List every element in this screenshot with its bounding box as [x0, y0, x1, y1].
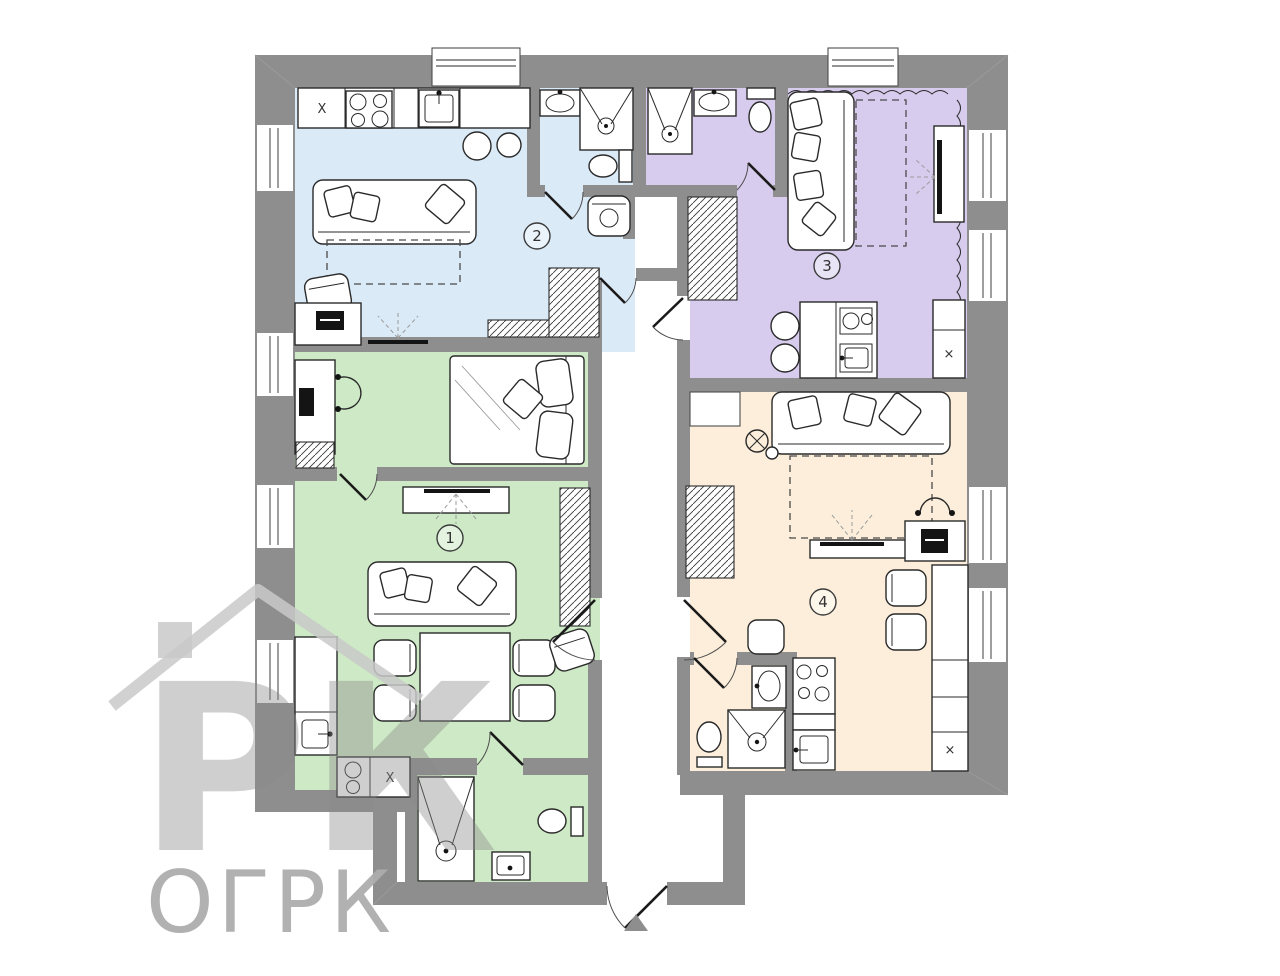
svg-text:3: 3 — [822, 257, 832, 275]
sofa-unit1 — [368, 562, 516, 626]
stove-unit2 — [346, 91, 392, 128]
door-unit3-hall — [653, 298, 683, 340]
window-left-2 — [257, 333, 293, 396]
floor-plan-drawing: X — [0, 0, 1280, 976]
svg-text:2: 2 — [532, 227, 542, 245]
closet-unit2 — [549, 268, 599, 337]
window-left-1 — [257, 125, 293, 191]
kitchen-x-mark-unit2: X — [318, 102, 327, 117]
kitchen-counter-unit2 — [298, 88, 530, 128]
cabinet-x-mark-unit4: × — [945, 743, 956, 758]
entrance-marker — [624, 914, 648, 931]
entrance-door — [607, 886, 667, 931]
vent-shaft-top-right — [828, 48, 898, 86]
toilet-unit4 — [697, 722, 722, 767]
washing-machine-unit2 — [588, 196, 630, 236]
desk-unit1 — [295, 360, 335, 454]
shower-unit4 — [728, 710, 785, 768]
cabinet-column-unit4: × — [932, 565, 968, 771]
window-right-1 — [969, 130, 1006, 201]
tv-cabinet-unit2 — [295, 303, 361, 345]
vent-shaft-top-left — [432, 48, 520, 86]
niche-unit4 — [690, 392, 740, 426]
stool-unit3-a — [771, 312, 799, 340]
room-label-1: 1 — [437, 525, 463, 551]
shower-unit2 — [580, 88, 633, 150]
closet-unit3 — [688, 197, 737, 300]
desk-unit4 — [905, 521, 965, 561]
closet-unit4 — [686, 486, 734, 578]
sofa-unit4 — [772, 392, 950, 454]
floor-plan-page: X — [0, 0, 1280, 976]
window-right-2 — [969, 230, 1006, 301]
shower-unit3 — [648, 88, 692, 154]
kitchen-unit4 — [793, 658, 835, 770]
svg-text:1: 1 — [445, 529, 455, 547]
dresser-unit1 — [296, 442, 334, 468]
sink-unit4 — [752, 666, 786, 708]
room-label-2: 2 — [524, 223, 550, 249]
closet-unit1 — [560, 488, 590, 626]
bed-unit1 — [450, 356, 584, 464]
sink-unit1 — [492, 852, 530, 880]
window-right-3 — [969, 487, 1006, 563]
cabinet-unit3: × — [933, 300, 965, 378]
cabinet-x-mark-unit3: × — [944, 347, 955, 362]
window-right-4 — [969, 588, 1006, 662]
shoe-rack-unit2 — [488, 320, 556, 337]
stool-unit4 — [748, 620, 784, 654]
window-left-3 — [257, 485, 293, 548]
room-label-3: 3 — [814, 253, 840, 279]
sofa-unit2 — [313, 180, 476, 244]
svg-text:4: 4 — [818, 593, 828, 611]
stool-unit2-a — [463, 132, 491, 160]
kitchen-unit3 — [800, 302, 877, 378]
sofa-unit3 — [788, 92, 854, 250]
kitchen-sink-unit2 — [419, 90, 459, 127]
stool-unit3-b — [771, 344, 799, 372]
stool-unit2-b — [497, 133, 521, 157]
room-label-4: 4 — [810, 589, 836, 615]
watermark-text: ОГРК — [146, 853, 395, 953]
